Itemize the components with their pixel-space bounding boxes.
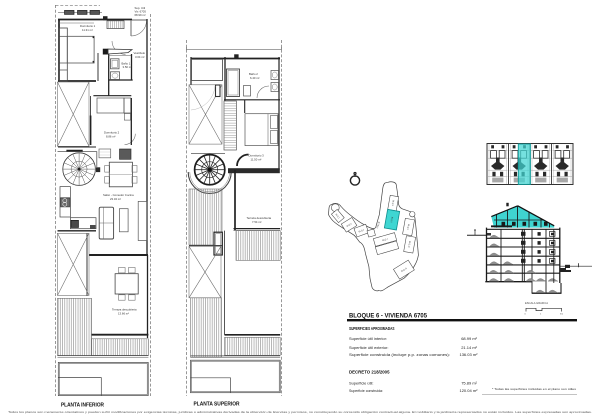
svg-text:21.14 m²: 21.14 m² <box>461 345 477 350</box>
svg-text:SUPERFICIES APROXIMADAS: SUPERFICIES APROXIMADAS <box>349 326 395 331</box>
svg-text:5m: 5m <box>560 314 563 316</box>
svg-text:68.99 m²: 68.99 m² <box>461 336 477 341</box>
svg-text:6.40 m²: 6.40 m² <box>250 76 260 80</box>
svg-text:23.32 m²: 23.32 m² <box>110 197 121 201</box>
svg-text:Todos los planos son meramente: Todos los planos son meramente orientati… <box>8 410 592 414</box>
svg-text:Superficie construida (incluye: Superficie construida (incluye p.p. zona… <box>349 352 450 357</box>
svg-text:120.04 m²: 120.04 m² <box>459 388 478 393</box>
svg-text:68.99 m²: 68.99 m² <box>135 13 146 17</box>
svg-text:PLANTA SUPERIOR: PLANTA SUPERIOR <box>194 402 240 408</box>
svg-text:3.04 m²: 3.04 m² <box>135 55 145 59</box>
svg-text:11.50 m²: 11.50 m² <box>251 157 262 161</box>
svg-text:Superficie útil interior:: Superficie útil interior: <box>349 336 387 341</box>
svg-text:3.50 m²: 3.50 m² <box>123 65 133 69</box>
svg-text:Superficie útil:: Superficie útil: <box>349 381 374 386</box>
svg-text:13.66 m²: 13.66 m² <box>118 311 129 315</box>
svg-text:ESCALA GRAFICA: ESCALA GRAFICA <box>525 301 548 305</box>
svg-text:8.86 m²: 8.86 m² <box>106 134 116 138</box>
svg-text:136.03 m²: 136.03 m² <box>459 352 478 357</box>
svg-text:DECRETO 218/2005: DECRETO 218/2005 <box>349 370 390 375</box>
svg-text:Superficie construida:: Superficie construida: <box>349 388 383 393</box>
svg-text:BLOQUE 6 - VIVIENDA 6705: BLOQUE 6 - VIVIENDA 6705 <box>349 313 427 320</box>
svg-text:PLANTA INFERIOR: PLANTA INFERIOR <box>61 403 104 409</box>
svg-text:* Todas las superficies inclui: * Todas las superficies incluidas en el … <box>492 387 577 391</box>
svg-text:Superficie útil exterior:: Superficie útil exterior: <box>349 345 389 350</box>
svg-text:75.89 m²: 75.89 m² <box>461 381 477 386</box>
svg-text:11.31 m²: 11.31 m² <box>82 28 93 32</box>
svg-text:7.54 m²: 7.54 m² <box>252 220 262 224</box>
